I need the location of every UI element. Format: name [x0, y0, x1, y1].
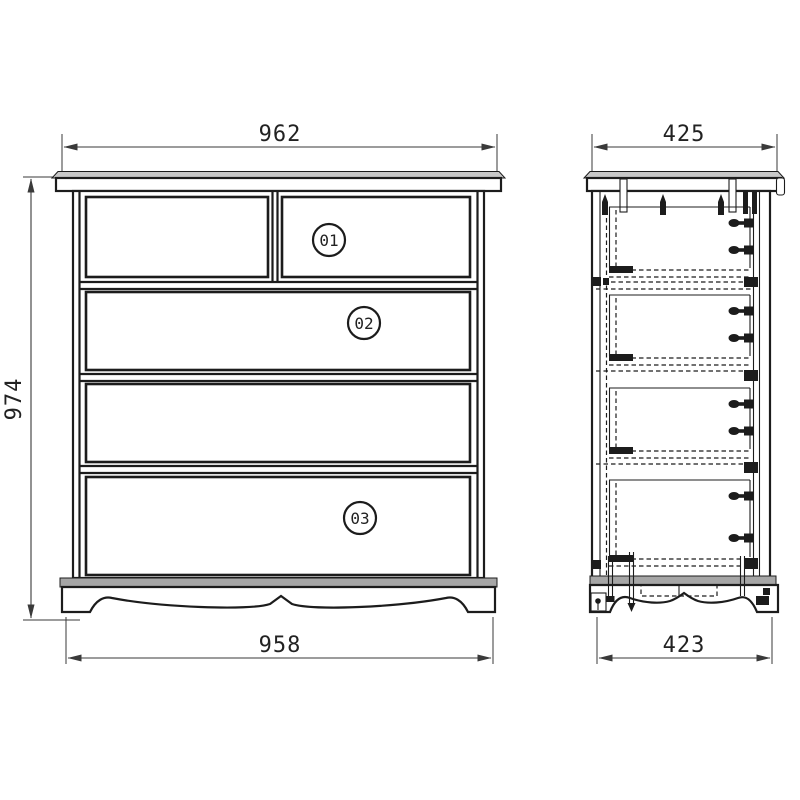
front-base-plinth — [60, 578, 497, 612]
front-drawer-second — [86, 292, 470, 370]
front-top-board — [52, 172, 505, 192]
side-view: 425 — [584, 122, 785, 664]
drawer-label-02: 02 — [348, 307, 380, 339]
drawer-label-03: 03 — [344, 502, 376, 534]
cam-lock — [744, 277, 758, 287]
cam-lock — [744, 370, 758, 381]
svg-text:02: 02 — [354, 314, 373, 333]
front-dim-top-width-label: 962 — [259, 122, 302, 147]
front-view: 962 974 — [2, 122, 505, 664]
svg-text:03: 03 — [350, 509, 369, 528]
front-dimension-top-width: 962 — [62, 122, 497, 175]
cam-lock — [744, 462, 758, 473]
front-drawer-third — [86, 384, 470, 462]
front-dimension-bottom-width: 958 — [66, 617, 493, 664]
side-dimension-bottom-width: 423 — [597, 617, 772, 664]
side-dim-bottom-width-label: 423 — [663, 633, 706, 658]
drawer-label-01: 01 — [313, 224, 345, 256]
cam-lock — [593, 560, 601, 569]
side-dimension-top-width: 425 — [592, 122, 777, 175]
front-drawer-bottom — [86, 477, 470, 575]
cam-lock — [603, 278, 609, 285]
front-dimension-height: 974 — [2, 177, 80, 620]
front-drawer-top-left — [86, 197, 268, 277]
front-dim-height-label: 974 — [2, 378, 27, 421]
side-dim-top-width-label: 425 — [663, 122, 706, 147]
front-drawer-top-right — [282, 197, 470, 277]
cam-lock — [593, 277, 601, 286]
svg-text:01: 01 — [319, 231, 338, 250]
cam-lock — [744, 558, 758, 569]
technical-drawing-canvas: 962 974 — [0, 0, 800, 800]
front-dim-bottom-width-label: 958 — [259, 633, 302, 658]
